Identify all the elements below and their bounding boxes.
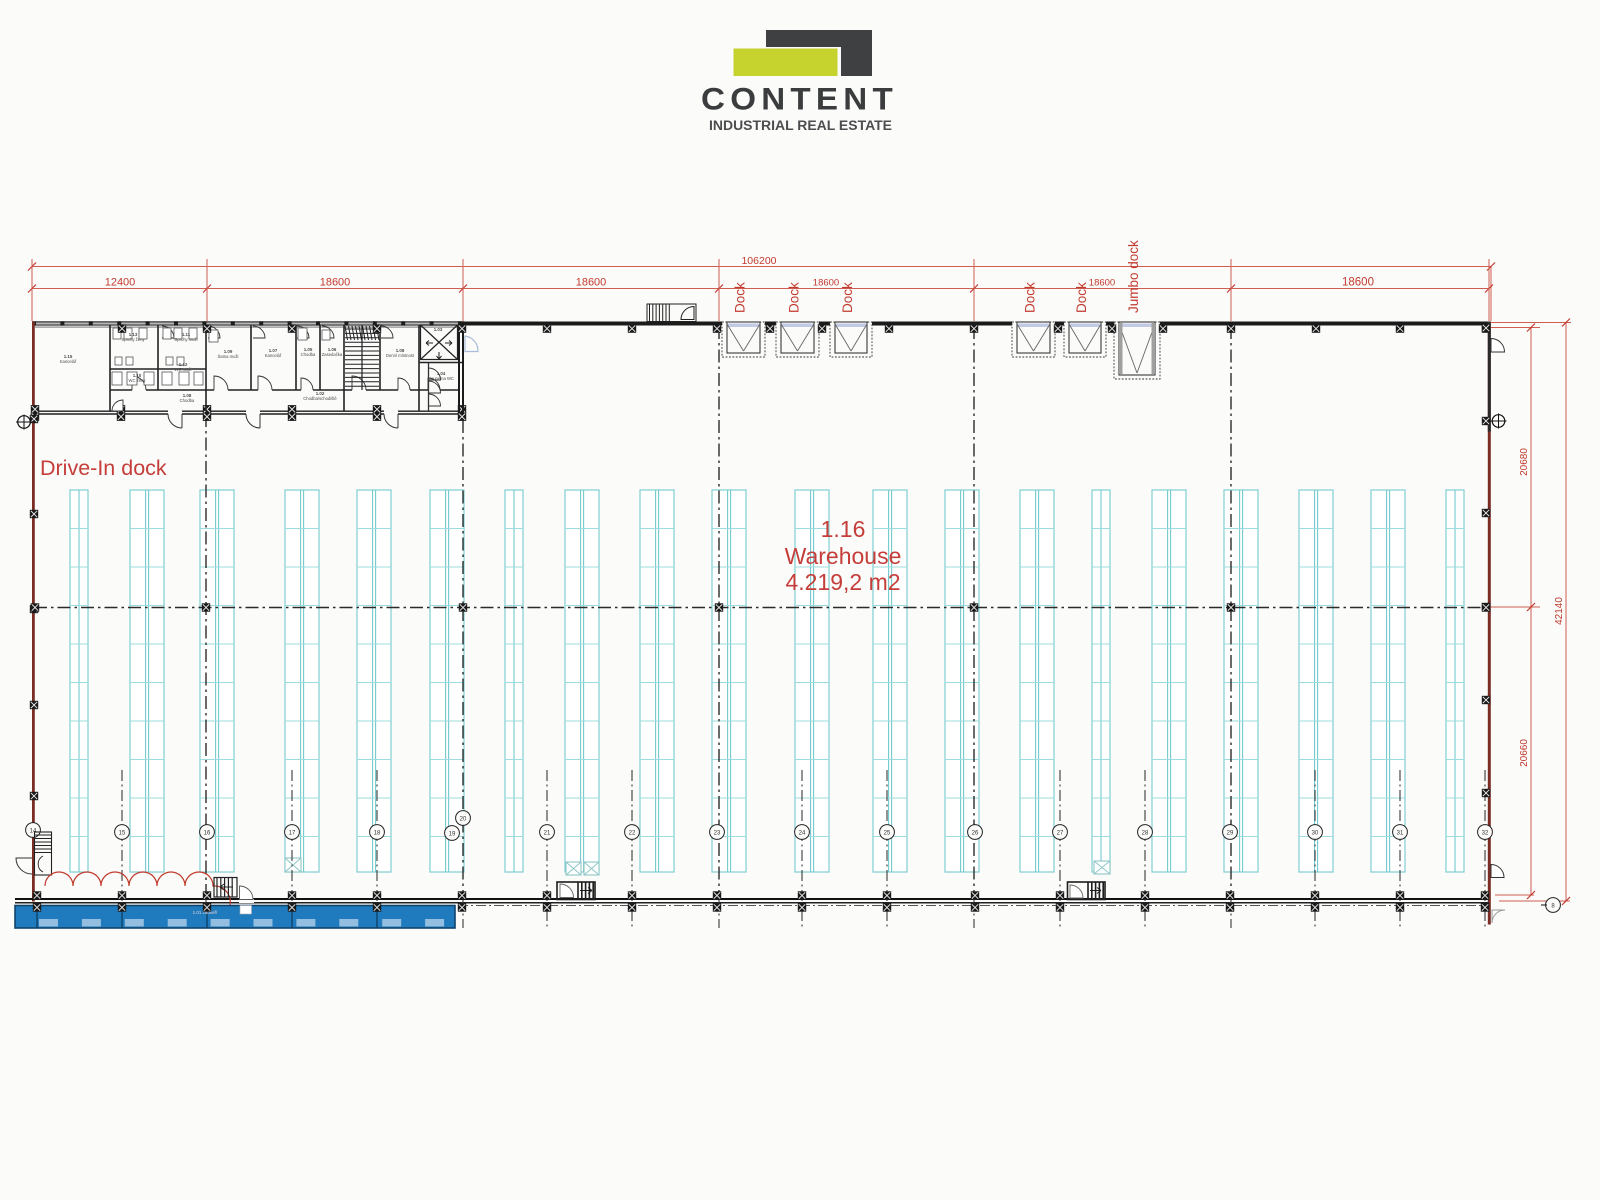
svg-text:Warehouse: Warehouse [785,543,902,569]
svg-text:INDUSTRIAL REAL ESTATE: INDUSTRIAL REAL ESTATE [709,118,892,133]
svg-text:20: 20 [460,816,467,822]
svg-text:19: 19 [449,831,456,837]
svg-text:26: 26 [972,830,979,836]
svg-text:Chodba: Chodba [180,398,195,403]
svg-text:Sprchy muži: Sprchy muži [174,337,197,342]
svg-text:18600: 18600 [1342,277,1374,289]
svg-text:1.16: 1.16 [821,516,866,542]
svg-text:17: 17 [289,830,296,836]
svg-text:23: 23 [714,830,721,836]
svg-text:Dock: Dock [1074,282,1089,313]
svg-text:22: 22 [629,830,636,836]
svg-text:42140: 42140 [1554,597,1565,625]
svg-text:Sprchy ženy: Sprchy ženy [121,337,145,342]
svg-text:18600: 18600 [813,278,839,289]
svg-text:24: 24 [799,830,806,836]
svg-text:15: 15 [119,830,126,836]
svg-text:Dock: Dock [1023,282,1038,313]
svg-text:20680: 20680 [1519,448,1530,476]
svg-text:Jumbo dock: Jumbo dock [1126,240,1141,313]
svg-text:1.03: 1.03 [434,327,443,332]
svg-text:106200: 106200 [741,255,776,267]
svg-text:29: 29 [1227,830,1234,836]
svg-text:12400: 12400 [105,277,136,289]
svg-text:Koupelna WC: Koupelna WC [428,376,454,381]
svg-text:Kancelář: Kancelář [60,359,77,364]
svg-text:32: 32 [1482,830,1489,836]
svg-text:18600: 18600 [576,277,607,289]
svg-text:28: 28 [1142,830,1149,836]
svg-text:20660: 20660 [1519,739,1530,767]
svg-text:Dock: Dock [733,282,748,313]
svg-text:18600: 18600 [1089,278,1115,289]
svg-text:4.219,2 m2: 4.219,2 m2 [785,569,900,595]
svg-text:Šatna muži: Šatna muži [218,354,239,359]
svg-text:CONTENT: CONTENT [701,81,898,117]
svg-text:Dock: Dock [840,282,855,313]
svg-text:21: 21 [544,830,551,836]
svg-text:Chodba/schodiště: Chodba/schodiště [303,396,337,401]
svg-text:16: 16 [204,830,211,836]
svg-text:Kancelář: Kancelář [265,353,282,358]
svg-text:WC ženy: WC ženy [129,378,147,383]
svg-text:25: 25 [884,830,891,836]
svg-text:18600: 18600 [320,277,351,289]
svg-text:WC muži: WC muži [175,367,192,372]
svg-text:14: 14 [30,828,37,834]
svg-text:Denní místnost: Denní místnost [386,353,415,358]
svg-text:30: 30 [1312,830,1319,836]
svg-text:Chodba: Chodba [301,352,316,357]
svg-text:Dock: Dock [787,282,802,313]
svg-text:Drive-In dock: Drive-In dock [40,456,167,480]
svg-text:31: 31 [1397,830,1404,836]
svg-text:18: 18 [374,830,381,836]
svg-text:Zasedačka: Zasedačka [322,352,343,357]
svg-text:27: 27 [1057,830,1064,836]
